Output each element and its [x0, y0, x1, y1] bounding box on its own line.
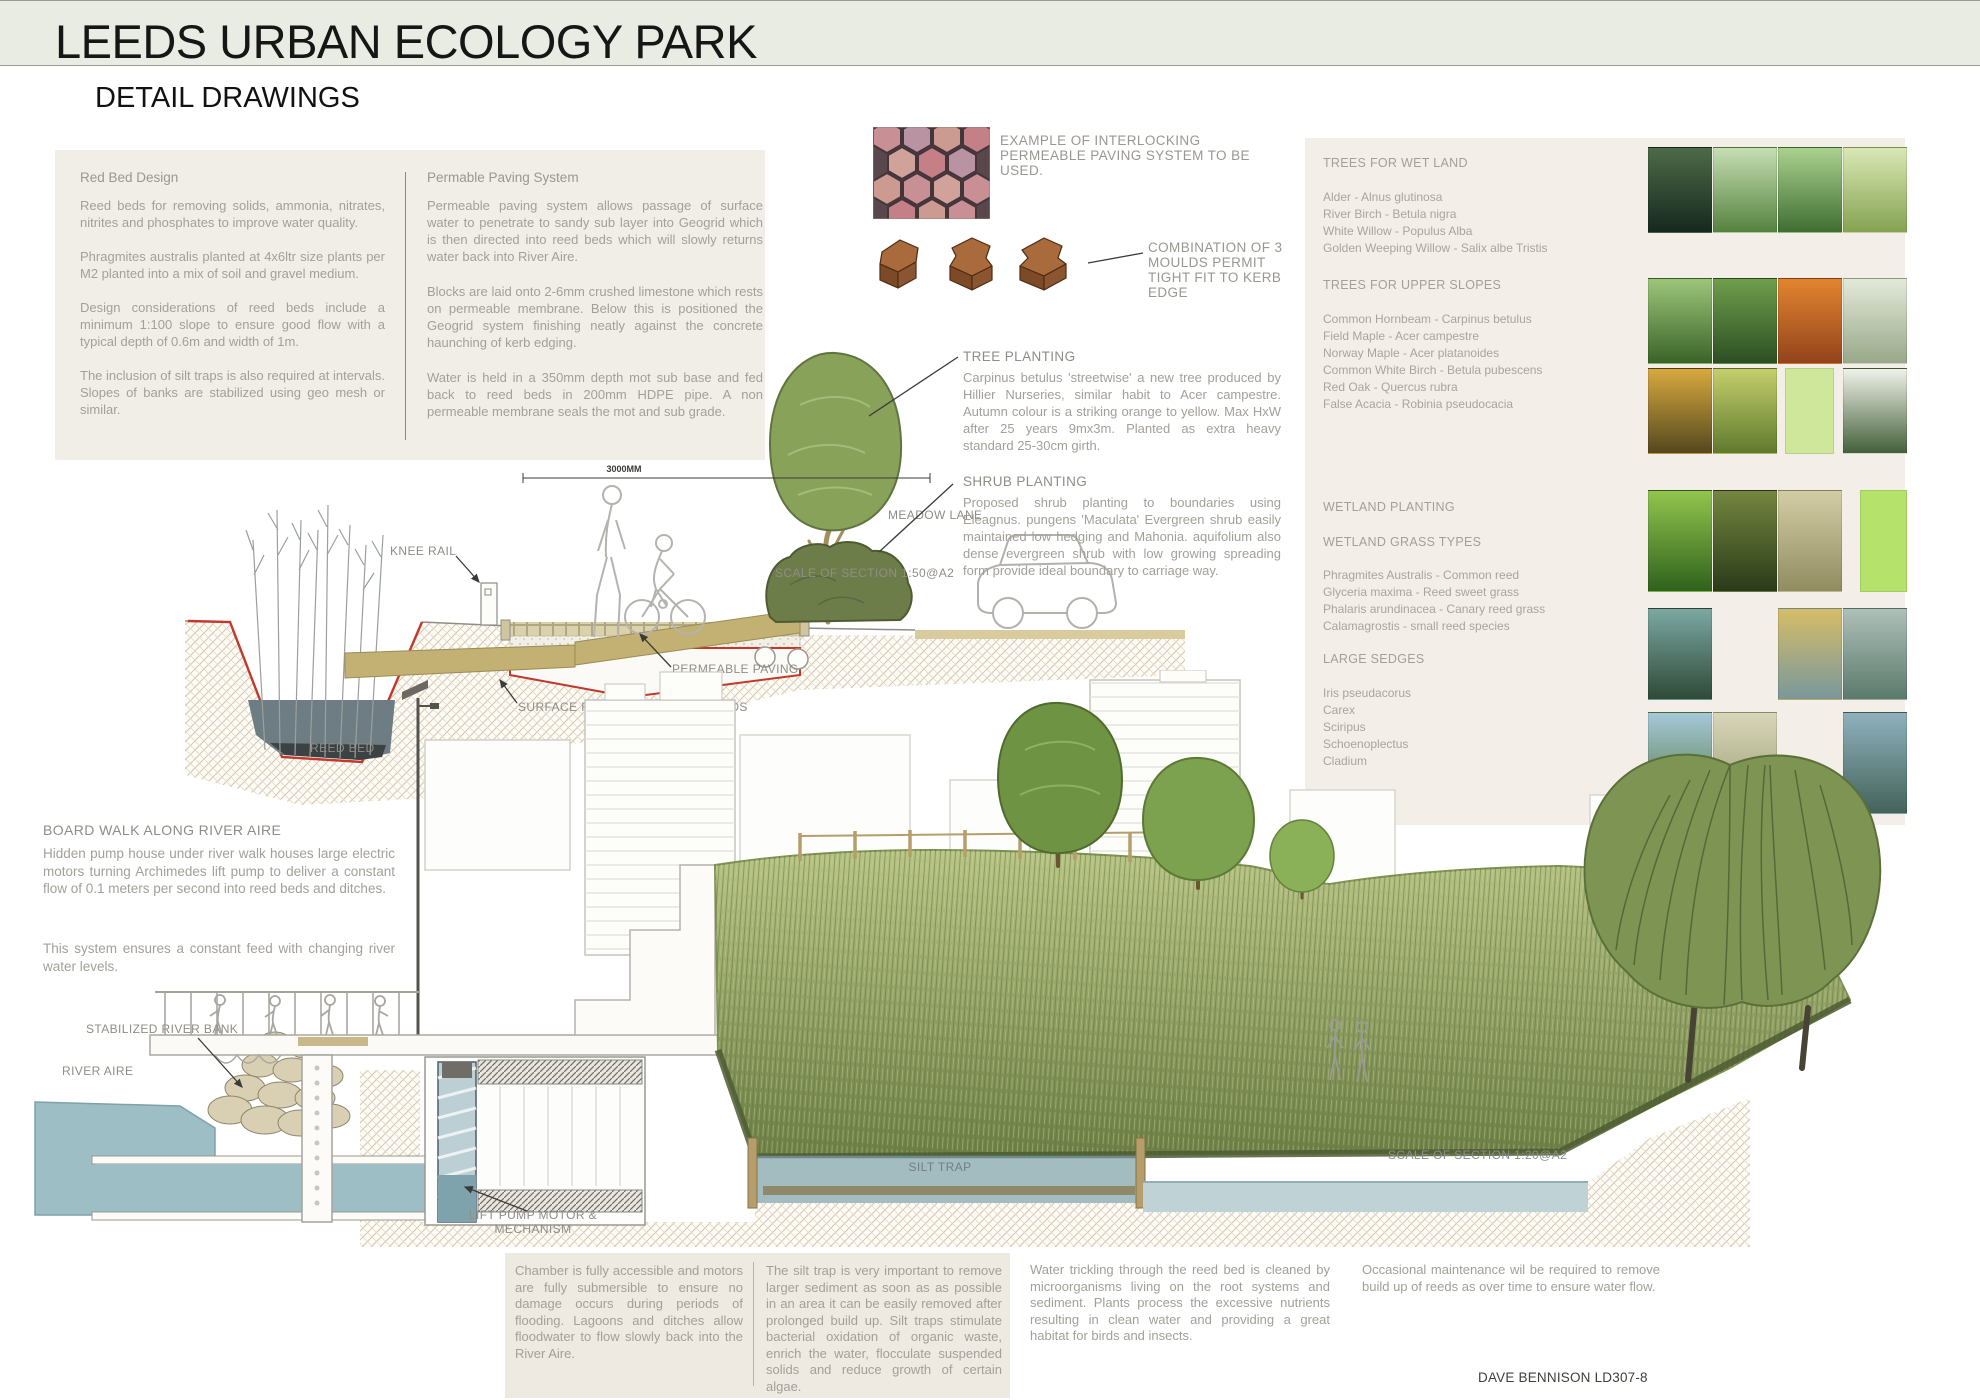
white-birch-photo [1843, 278, 1907, 364]
knee-rail-label: KNEE RAIL [390, 544, 456, 558]
list-item: Calamagrostis - small reed species [1323, 619, 1510, 633]
pedestrian-figure [594, 486, 625, 637]
chamber-note: Chamber is fully accessible and motors a… [515, 1263, 743, 1362]
pipe-wall-bottom [92, 1212, 479, 1220]
dry-grass-photo [1778, 490, 1842, 592]
list-item: Phalaris arundinacea - Canary reed grass [1323, 602, 1545, 616]
moulds-leader-line [1088, 253, 1143, 263]
red-oak-autumn-photo [1648, 368, 1712, 454]
list-item: Phragmites Australis - Common reed [1323, 568, 1519, 582]
mould-blocks-illustration [876, 228, 1088, 300]
page-title: LEEDS URBAN ECOLOGY PARK [55, 14, 757, 69]
maintenance-note: Occasional maintenance wil be required t… [1362, 1262, 1660, 1295]
red-bed-para-3: Design considerations of reed beds inclu… [80, 299, 385, 350]
list-item: Red Oak - Quercus rubra [1323, 380, 1458, 394]
river-birch-photo [1713, 147, 1777, 233]
deck-timber-strip [298, 1037, 368, 1046]
wetland-planting-heading: WETLAND PLANTING [1323, 500, 1455, 514]
notes-divider [753, 1262, 754, 1386]
silt-trap-note: The silt trap is very important to remov… [766, 1263, 1002, 1395]
field-maple-photo [1713, 278, 1777, 364]
bright-green-swatch [1860, 490, 1907, 592]
wetland-trees-heading: TREES FOR WET LAND [1323, 156, 1468, 170]
mould-blocks-label: COMBINATION OF 3 MOULDS PERMIT TIGHT FIT… [1148, 240, 1308, 300]
pump-chamber [425, 1057, 645, 1225]
shrub-planting-heading: SHRUB PLANTING [963, 474, 1087, 489]
iris-leaves-photo [1648, 490, 1712, 592]
ditch-channel [1143, 1182, 1588, 1212]
list-item: Common Hornbeam - Carpinus betulus [1323, 312, 1532, 326]
earth-under-channel [1143, 1212, 1588, 1247]
common-reed-photo [1713, 490, 1777, 592]
list-item: White Willow - Populus Alba [1323, 224, 1472, 238]
shrub-planting-body: Proposed shrub planting to boundaries us… [963, 494, 1281, 579]
red-bed-para-1: Reed beds for removing solids, ammonia, … [80, 197, 385, 231]
paving-para-2: Blocks are laid onto 2-6mm crushed limes… [427, 283, 763, 351]
silt-trap-label: SILT TRAP [880, 1160, 1000, 1174]
list-item: Field Maple - Acer campestre [1323, 329, 1479, 343]
wetland-grass-heading: WETLAND GRASS TYPES [1323, 535, 1481, 549]
list-item: False Acacia - Robinia pseudocacia [1323, 397, 1513, 411]
pipe-wall-top [92, 1156, 479, 1164]
paving-heading: Permable Paving System [427, 170, 579, 185]
tree-planting-heading: TREE PLANTING [963, 349, 1075, 364]
river-aire-label: RIVER AIRE [62, 1064, 133, 1078]
interlocking-paving-photo [873, 127, 990, 219]
list-item: River Birch - Betula nigra [1323, 207, 1456, 221]
stabilized-bank-label: STABILIZED RIVER BANK [86, 1022, 238, 1036]
scale-1-20-label: SCALE OF SECTION 1:20@A2 [1388, 1148, 1567, 1162]
scale-1-50-label: SCALE OF SECTION 1:50@A2 [775, 566, 954, 580]
dimension-label: 3000MM [588, 464, 660, 474]
weeping-willow-photo [1843, 147, 1907, 233]
page-subtitle: DETAIL DRAWINGS [95, 82, 360, 115]
lift-pump-label: LIFT PUMP MOTOR & MECHANISM [448, 1208, 618, 1236]
author-credit: DAVE BENNISON LD307-8 [1478, 1370, 1648, 1385]
red-bed-heading: Red Bed Design [80, 170, 178, 185]
hornbeam-photo [1648, 278, 1712, 364]
norway-maple-autumn-photo [1778, 278, 1842, 364]
list-item: Common White Birch - Betula pubescens [1323, 363, 1542, 377]
kerb-left [501, 620, 510, 640]
alder-wetland-photo [1648, 147, 1712, 233]
silt-trap-post-left [748, 1138, 757, 1208]
poster-board: LEEDS URBAN ECOLOGY PARK DETAIL DRAWINGS… [0, 0, 1980, 1400]
interlocking-paving-label: EXAMPLE OF INTERLOCKING PERMEABLE PAVING… [1000, 133, 1270, 178]
white-willow-photo [1778, 147, 1842, 233]
carriageway-surface [915, 630, 1185, 639]
red-bed-para-2: Phragmites australis planted at 4x6ltr s… [80, 248, 385, 282]
blossom-photo [1843, 368, 1907, 454]
cyclist-figure [625, 535, 705, 634]
list-item: Golden Weeping Willow - Salix albe Trist… [1323, 241, 1548, 255]
list-item: Norway Maple - Acer platanoides [1323, 346, 1499, 360]
shrub-illustration [766, 542, 911, 622]
tree-planting-body: Carpinus betulus 'streetwise' a new tree… [963, 369, 1281, 454]
green-swatch [1785, 368, 1834, 454]
pipe-water [95, 1164, 476, 1212]
earth-under-silt-trap [755, 1203, 1143, 1247]
list-item: Alder - Alnus glutinosa [1323, 190, 1442, 204]
list-item: Glyceria maxima - Reed sweet grass [1323, 585, 1519, 599]
water-cleaning-note: Water trickling through the reed bed is … [1030, 1262, 1330, 1345]
upper-slope-trees-heading: TREES FOR UPPER SLOPES [1323, 278, 1501, 292]
paving-para-1: Permeable paving system allows passage o… [427, 197, 763, 265]
false-acacia-photo [1713, 368, 1777, 454]
pump-motor [442, 1062, 472, 1078]
large-sedges-heading: LARGE SEDGES [1323, 652, 1425, 666]
